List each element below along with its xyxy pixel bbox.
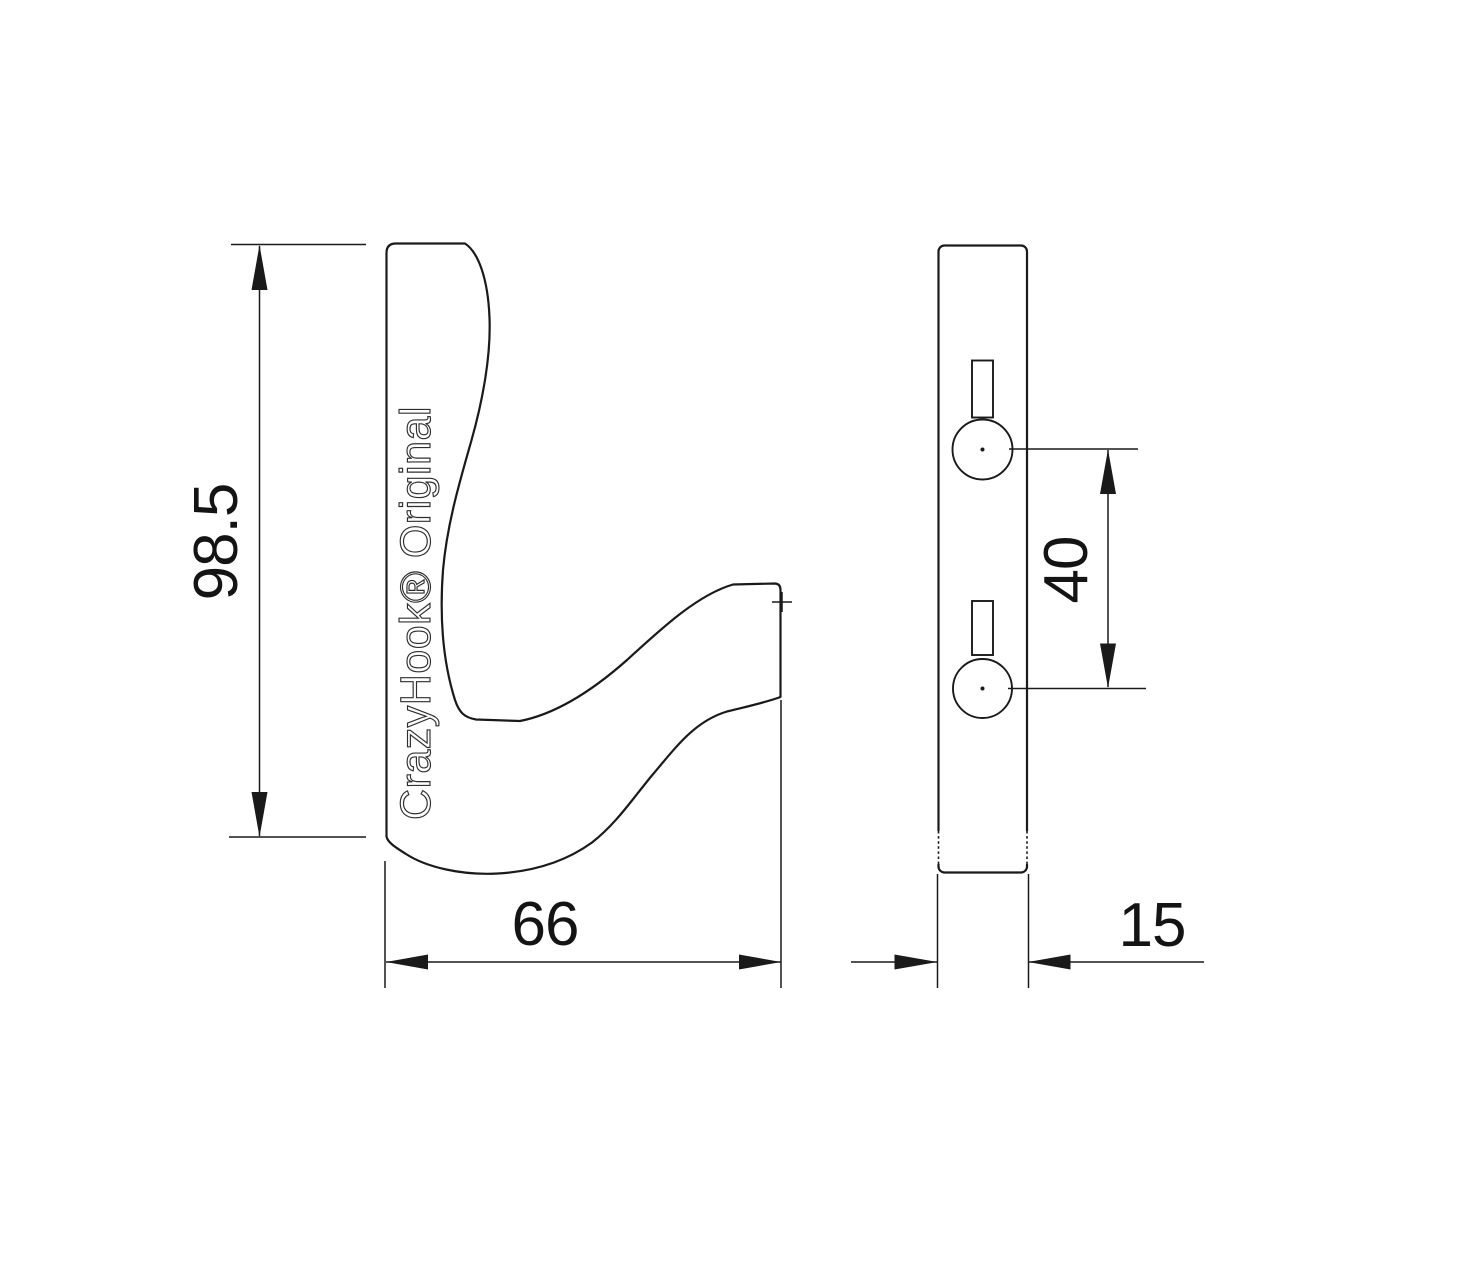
front-view	[934, 246, 1032, 873]
dim-text-width: 66	[512, 890, 579, 959]
plate-outline	[939, 246, 1028, 873]
engraved-label: CrazyHook® Original	[392, 406, 440, 820]
keyhole-slot-upper	[972, 361, 993, 418]
arrowhead-left-icon	[1028, 955, 1071, 970]
drawing-sheet: CrazyHook® Original 98.5 66	[0, 0, 1458, 1268]
hole-center-dot-lower	[981, 687, 985, 691]
side-view: CrazyHook® Original	[387, 244, 793, 874]
arrowhead-right-icon	[739, 955, 781, 970]
dim-text-hole-spacing: 40	[1032, 537, 1101, 604]
dim-text-thickness: 15	[1119, 891, 1186, 960]
arrowhead-up-icon	[1100, 450, 1116, 495]
tip-center-mark-icon	[772, 592, 792, 612]
arrowhead-up-icon	[252, 245, 268, 290]
arrowhead-down-icon	[252, 792, 268, 837]
hole-center-dot-upper	[981, 448, 985, 452]
cad-drawing: CrazyHook® Original 98.5 66	[0, 0, 1458, 1268]
dim-text-height: 98.5	[182, 484, 251, 601]
dim-hole-spacing: 40	[1008, 449, 1146, 689]
keyhole-slot-lower	[972, 601, 993, 655]
arrowhead-down-icon	[1100, 644, 1116, 689]
arrowhead-left-icon	[386, 955, 428, 970]
dim-width: 66	[385, 700, 781, 988]
dim-thickness: 15	[851, 874, 1204, 988]
dim-height: 98.5	[182, 245, 366, 838]
hook-outline-path	[387, 244, 781, 874]
arrowhead-right-icon	[895, 955, 938, 970]
